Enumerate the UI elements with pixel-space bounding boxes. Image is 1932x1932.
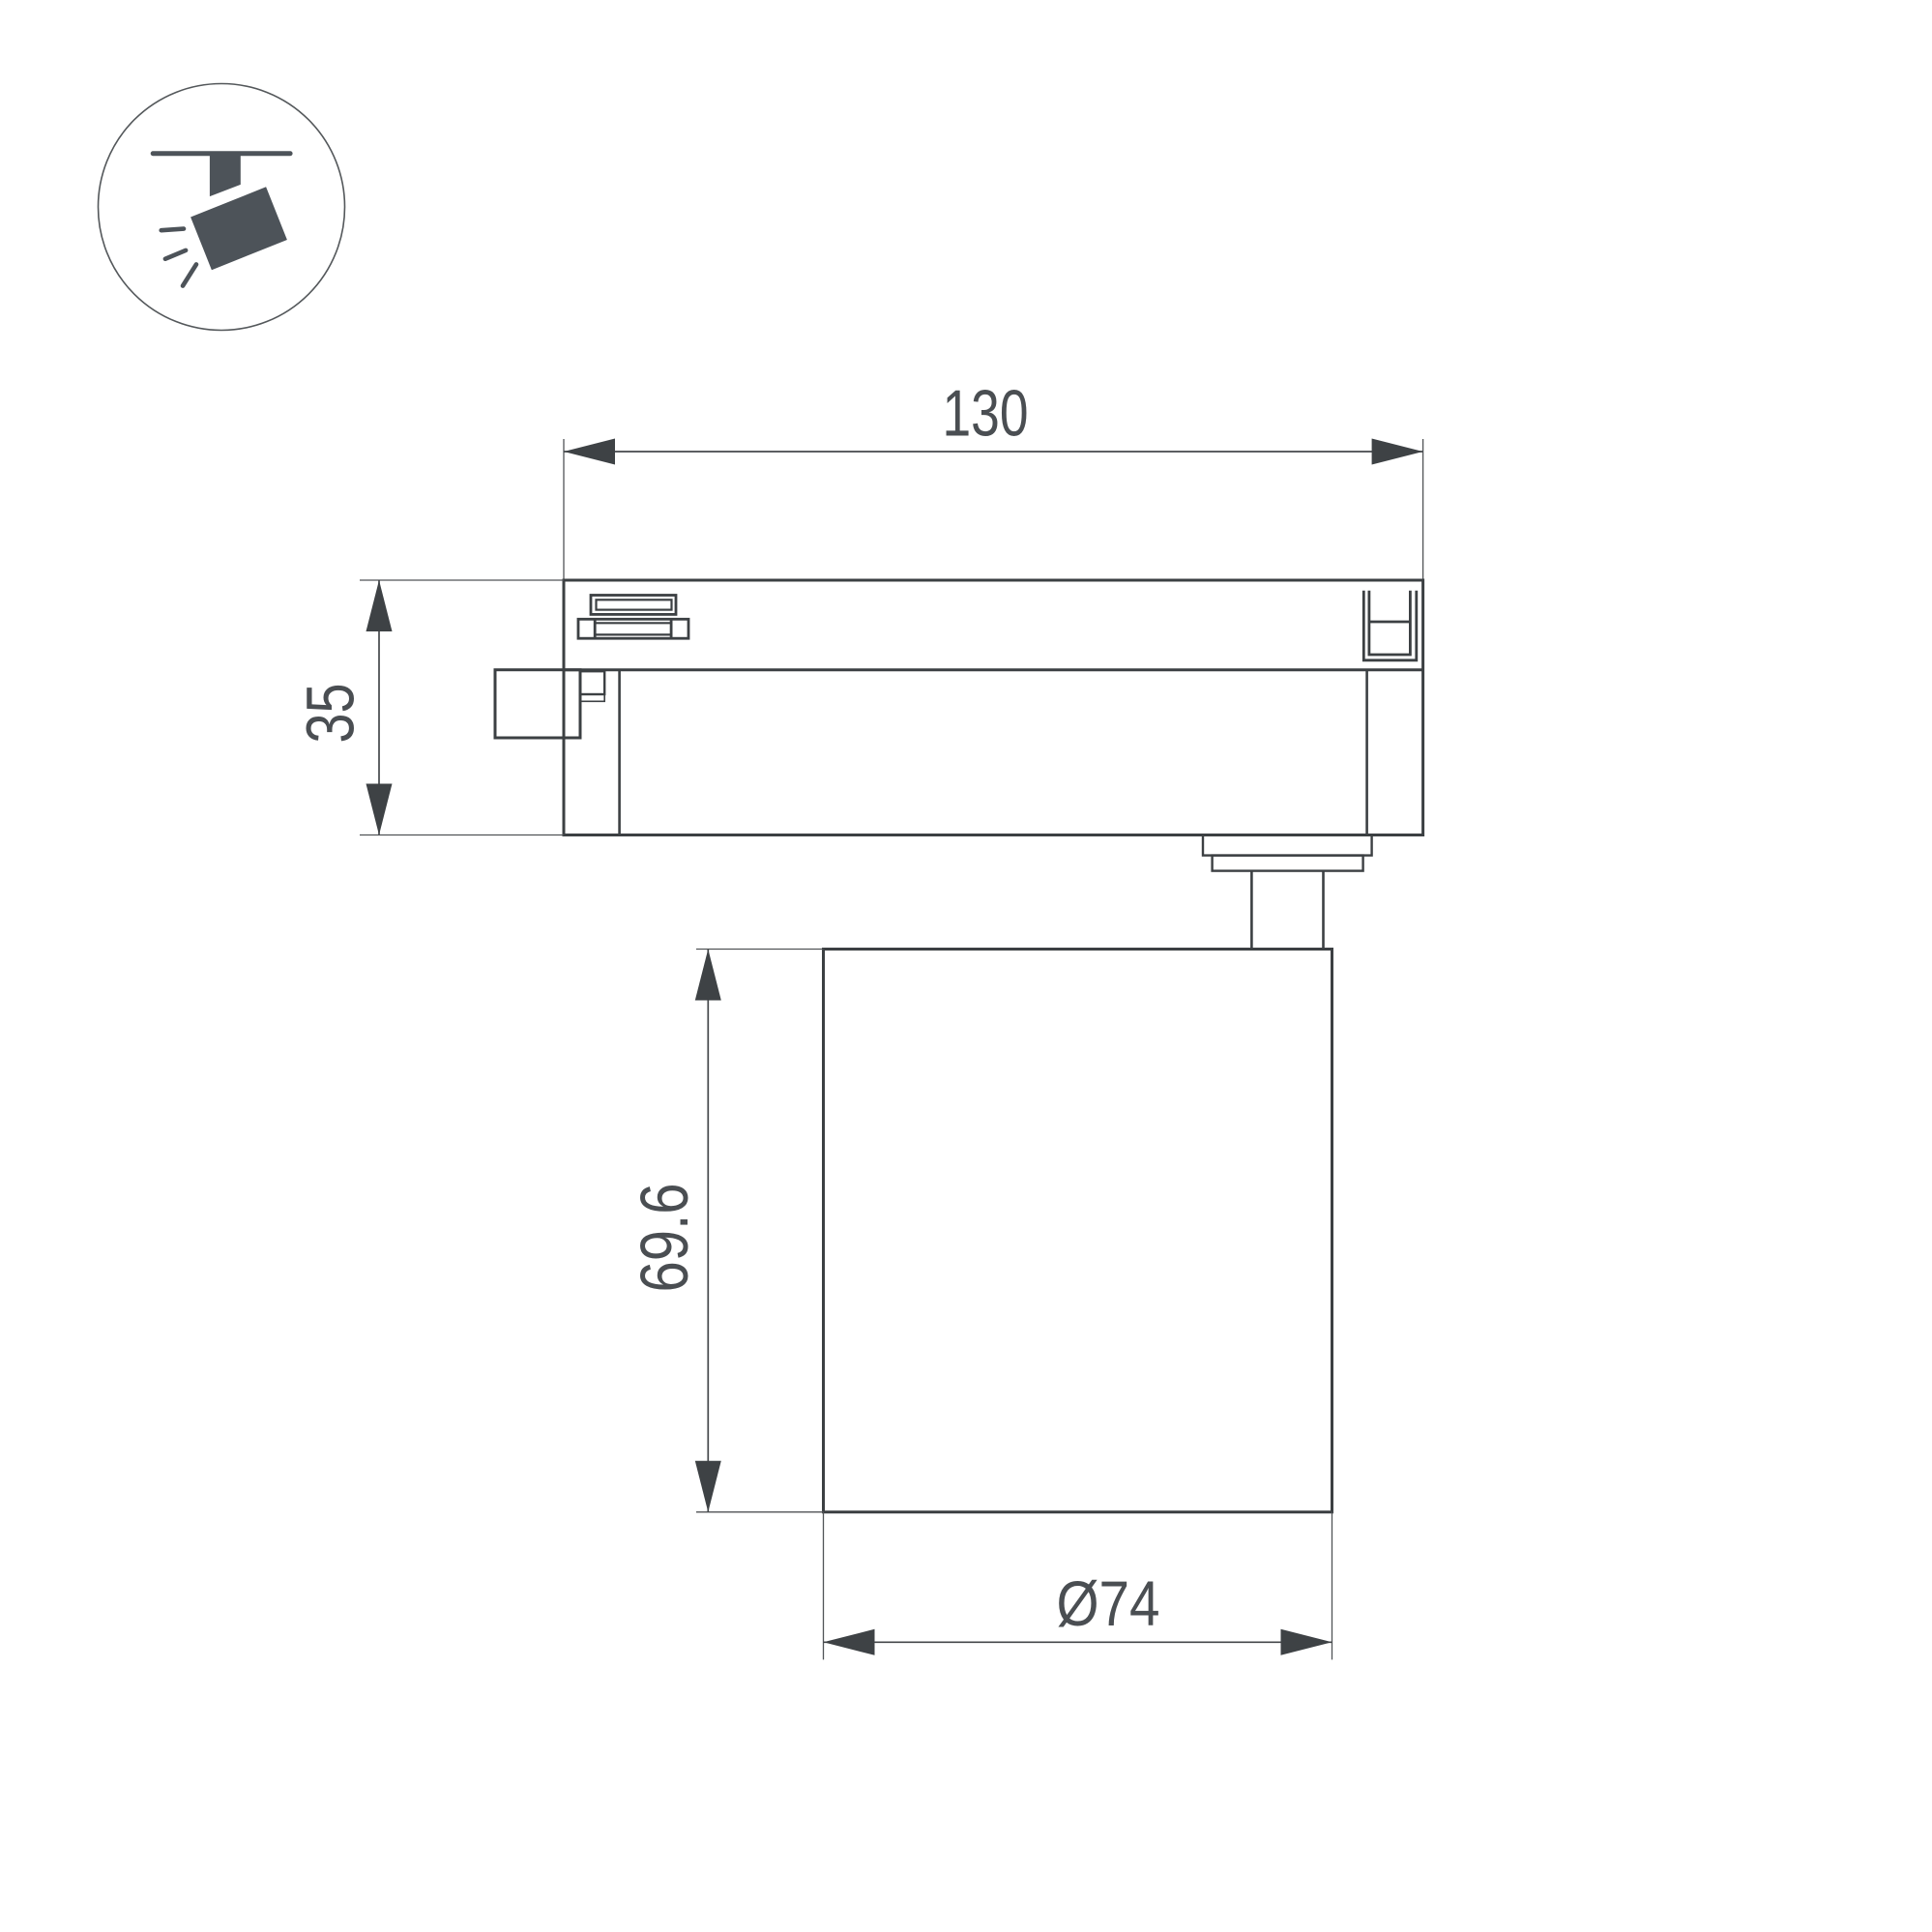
svg-text:130: 130 [943, 377, 1029, 451]
svg-text:35: 35 [293, 684, 368, 744]
svg-text:69.6: 69.6 [627, 1184, 702, 1293]
svg-text:Ø74: Ø74 [1057, 1567, 1160, 1639]
